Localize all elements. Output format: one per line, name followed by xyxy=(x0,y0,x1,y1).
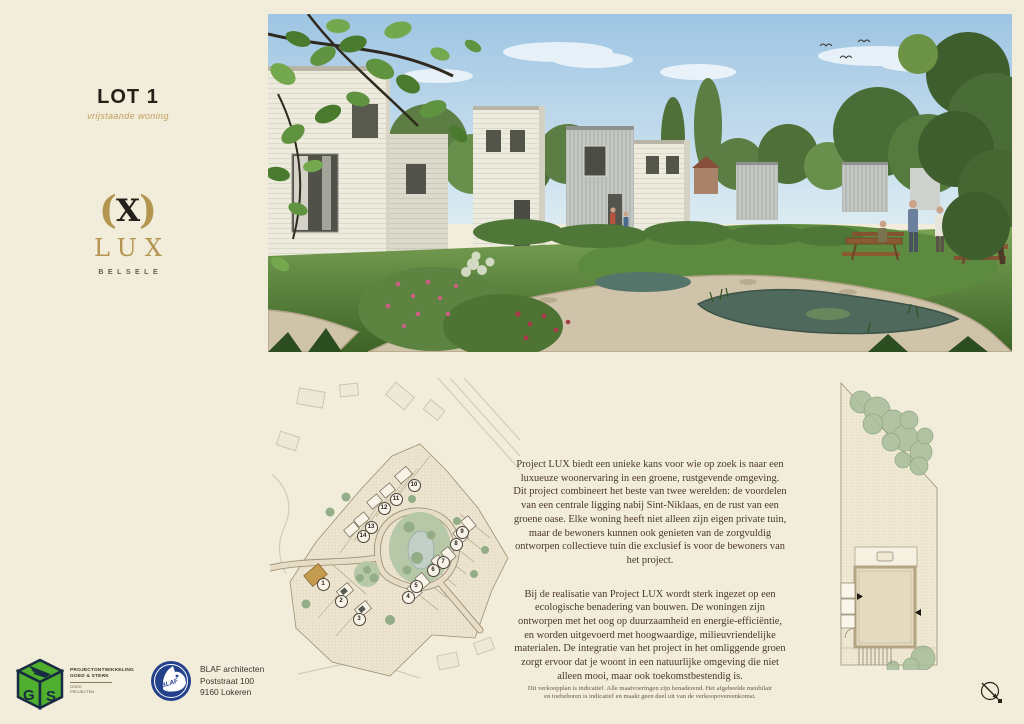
developer-block: G S PROJECTONTWIKKELING GOED & STERK GOE… xyxy=(16,658,134,712)
lot-marker-8: 8 xyxy=(450,538,463,551)
description-paragraph-1: Project LUX biedt een unieke kans voor w… xyxy=(513,458,787,568)
developer-signature-rule xyxy=(70,682,112,683)
logo-paren-open: ( xyxy=(99,187,117,232)
lot-marker-5: 5 xyxy=(410,580,423,593)
logo-paren-close: ) xyxy=(139,187,157,232)
lot-detail-drawing xyxy=(833,380,943,670)
lot-detail-plan xyxy=(833,380,943,670)
lot-marker-3: 3 xyxy=(353,613,366,626)
lot-marker-2: 2 xyxy=(335,595,348,608)
lot-marker-12: 12 xyxy=(378,502,391,515)
architect-street: Poststraat 100 xyxy=(200,676,264,688)
lot-marker-9: 9 xyxy=(456,526,469,539)
logo-x: X xyxy=(116,193,140,229)
site-plan: 1234567891011121314 xyxy=(270,378,520,685)
lot-header: LOT 1 vrijstaande woning xyxy=(73,86,183,121)
disclaimer: Dit verkoopplan is indicatief. Alle maat… xyxy=(513,685,787,701)
gs-cube-logo-icon: G S xyxy=(16,658,64,712)
site-plan-drawing xyxy=(270,378,520,685)
brochure-board: LOT 1 vrijstaande woning (X) LUX BELSELE xyxy=(0,0,1024,724)
lot-marker-1: 1 xyxy=(317,578,330,591)
svg-text:S: S xyxy=(46,688,56,705)
lot-marker-4: 4 xyxy=(402,591,415,604)
project-description: Project LUX biedt een unieke kans voor w… xyxy=(513,458,787,684)
lux-x-logo-icon: (X) xyxy=(58,190,198,232)
developer-line2: GOED & STERK xyxy=(70,674,134,680)
page-title: LOT 1 xyxy=(73,86,183,109)
architect-name: BLAF architecten xyxy=(200,664,264,676)
lot-marker-11: 11 xyxy=(390,493,403,506)
lot-subtitle: vrijstaande woning xyxy=(73,111,183,121)
disclaimer-line1: Dit verkoopplan is indicatief. Alle maat… xyxy=(513,685,787,693)
north-arrow-icon xyxy=(977,678,1005,706)
lot-marker-10: 10 xyxy=(408,479,421,492)
brand-logo: (X) LUX BELSELE xyxy=(58,190,198,276)
rendering-scene-image xyxy=(268,14,1012,352)
lot-marker-14: 14 xyxy=(357,530,370,543)
svg-text:G: G xyxy=(23,687,35,704)
developer-line1: PROJECTONTWIKKELING xyxy=(70,668,134,674)
brand-name: LUX xyxy=(58,234,198,262)
architect-block: BLAF BLAF architecten Poststraat 100 916… xyxy=(150,660,264,702)
lot-marker-7: 7 xyxy=(437,556,450,569)
brand-location: BELSELE xyxy=(58,269,198,276)
project-rendering xyxy=(268,14,1012,352)
architect-city: 9160 Lokeren xyxy=(200,687,264,699)
description-paragraph-2: Bij de realisatie van Project LUX wordt … xyxy=(513,588,787,684)
disclaimer-line2: en toebehoren is indicatief en maakt gee… xyxy=(513,693,787,701)
blaf-logo-icon: BLAF xyxy=(150,660,192,702)
developer-sub2: PROJECTEN xyxy=(70,690,134,695)
